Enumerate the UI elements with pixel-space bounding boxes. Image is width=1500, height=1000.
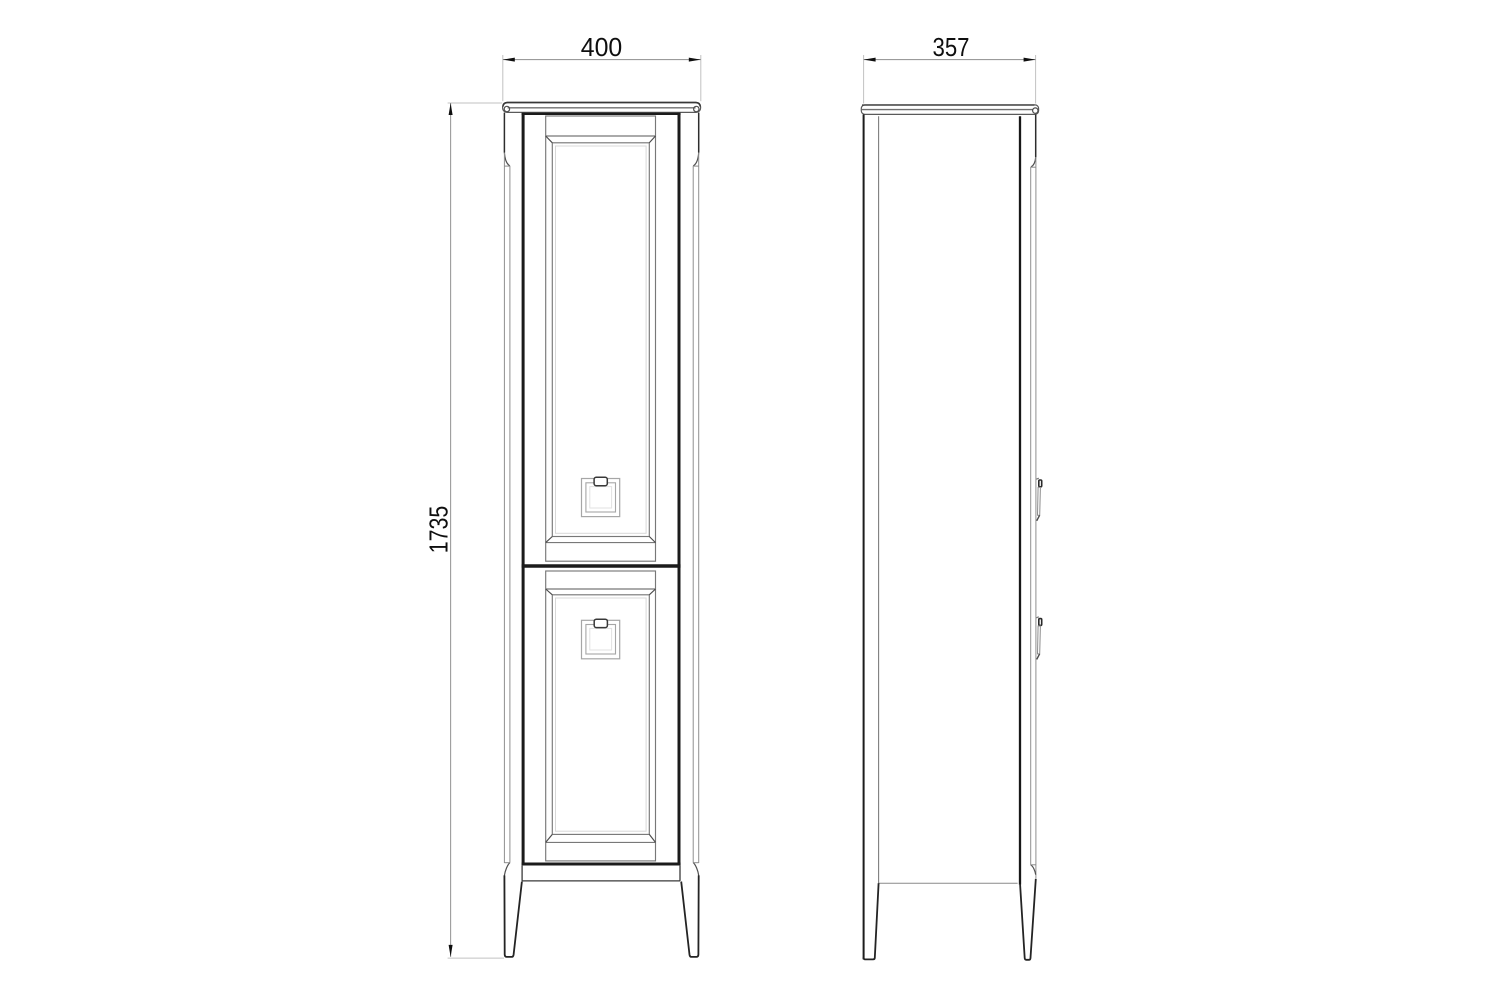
svg-text:1735: 1735 bbox=[424, 506, 454, 554]
svg-text:400: 400 bbox=[581, 32, 623, 62]
svg-text:357: 357 bbox=[933, 32, 970, 62]
